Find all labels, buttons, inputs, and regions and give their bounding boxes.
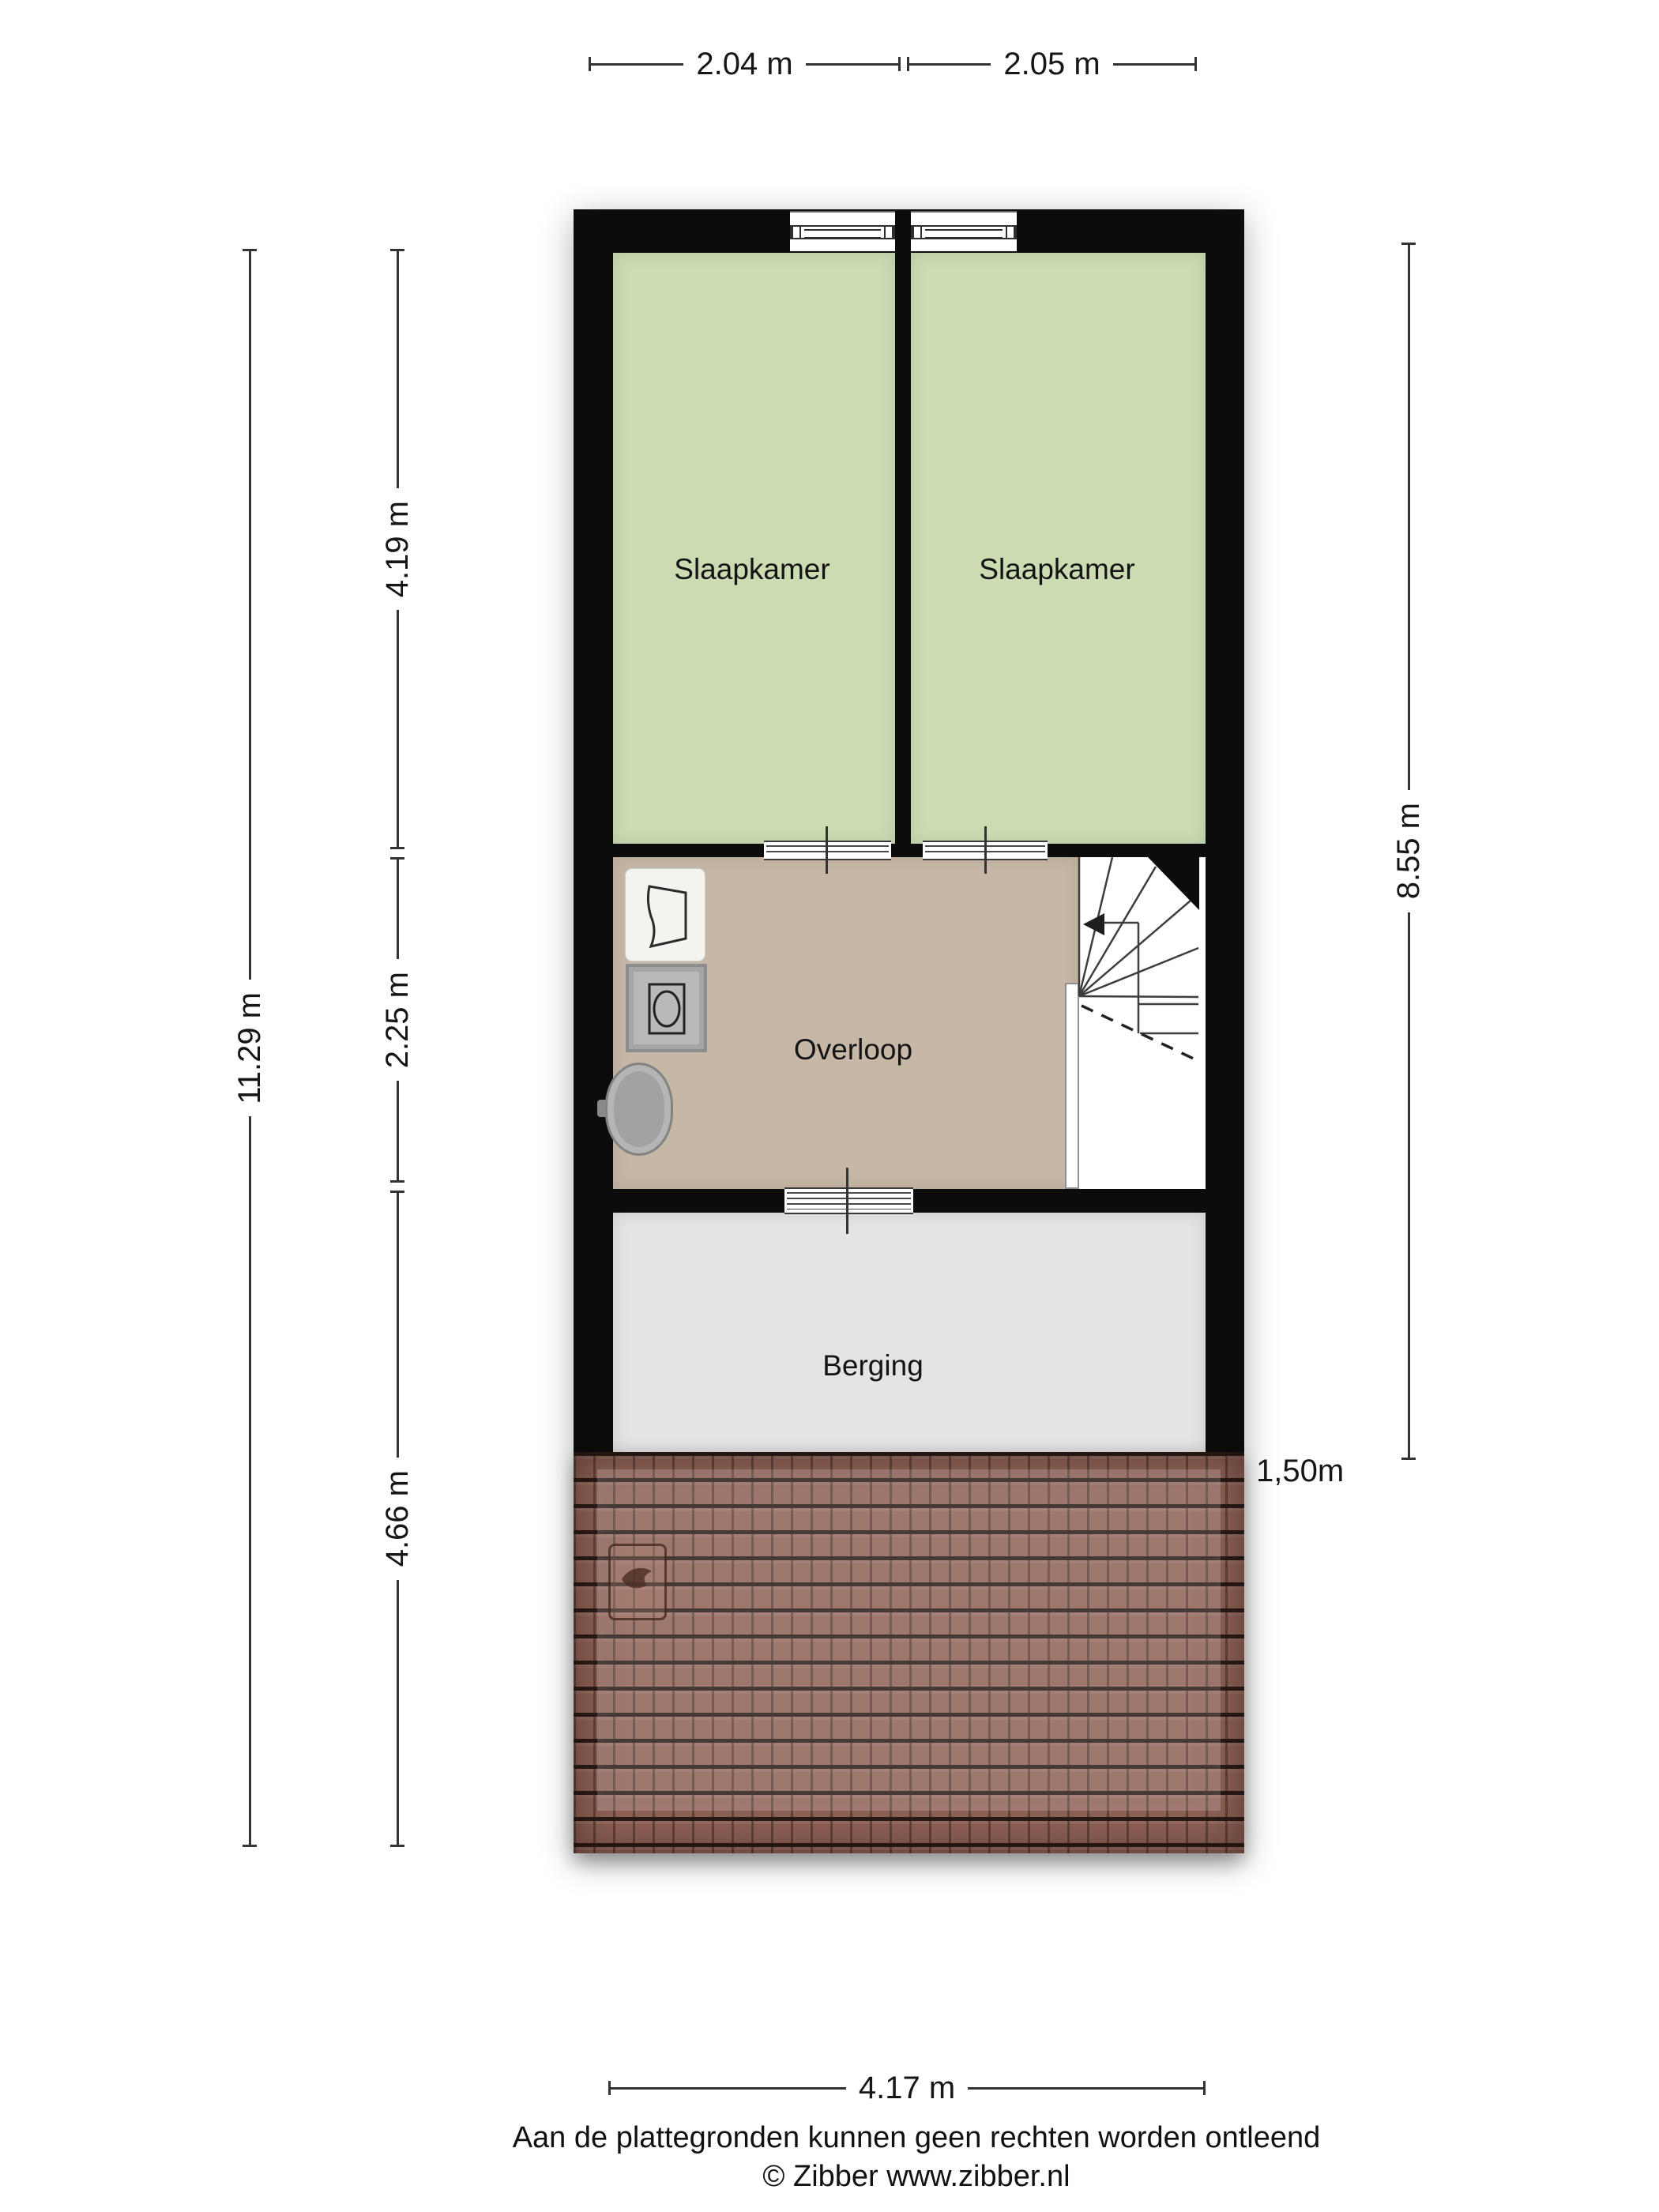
door-swing-mark bbox=[846, 1168, 848, 1234]
dimension-label: 4.17 m bbox=[846, 2071, 968, 2106]
window-glazing bbox=[804, 229, 881, 239]
door-swing-mark bbox=[984, 826, 987, 874]
roof-highlight bbox=[597, 1469, 1221, 1811]
room-label-storage: Berging bbox=[754, 1349, 991, 1382]
stairs-drawing bbox=[1059, 837, 1244, 1201]
dimension-tick bbox=[898, 57, 901, 71]
dimension-tick bbox=[1194, 57, 1197, 71]
dimension-line bbox=[397, 251, 399, 488]
footer-disclaimer: Aan de plattegronden kunnen geen rechten… bbox=[150, 2119, 1659, 2157]
dimension-label: 4.19 m bbox=[380, 488, 416, 610]
window-mullion bbox=[1006, 227, 1015, 238]
dimension-line bbox=[909, 63, 991, 66]
room-bedroom-left bbox=[613, 253, 895, 844]
dimension-tick bbox=[1203, 2081, 1206, 2095]
dimension-line bbox=[397, 610, 399, 847]
dimension-label: 2.25 m bbox=[380, 959, 416, 1081]
window-frame bbox=[790, 225, 895, 239]
room-label-landing: Overloop bbox=[735, 1033, 972, 1066]
room-label-bedroom-left: Slaapkamer bbox=[634, 553, 871, 586]
roof-window-icon bbox=[608, 1544, 667, 1620]
door-threshold bbox=[787, 1192, 911, 1209]
footer-copyright: © Zibber www.zibber.nl bbox=[150, 2157, 1659, 2196]
laundry-basket-icon bbox=[626, 869, 705, 961]
floor-plan: 2.04 m 2.05 m 11.29 m 4.19 m 2.25 m 4.66… bbox=[0, 0, 1659, 2212]
dimension-left-segment-2: 2.25 m bbox=[377, 857, 418, 1183]
wall-left bbox=[574, 209, 613, 1452]
sink-icon bbox=[605, 1063, 673, 1156]
dimension-label: 11.29 m bbox=[232, 980, 268, 1117]
room-bedroom-right bbox=[911, 253, 1206, 844]
dimension-left-segment-1: 4.19 m bbox=[377, 249, 418, 849]
wall-right bbox=[1206, 209, 1244, 1452]
window-mullion bbox=[912, 227, 922, 238]
dimension-bottom: 4.17 m bbox=[608, 2069, 1206, 2107]
wall-bedroom-divider bbox=[895, 209, 911, 857]
dimension-line bbox=[968, 2087, 1203, 2090]
dimension-line bbox=[397, 1193, 399, 1458]
window-frame bbox=[911, 225, 1017, 239]
dimension-tick bbox=[390, 1180, 404, 1183]
dimension-line bbox=[249, 1116, 251, 1845]
dimension-label: 2.05 m bbox=[991, 47, 1112, 82]
dimension-line bbox=[1113, 63, 1194, 66]
dimension-top-right: 2.05 m bbox=[907, 45, 1197, 83]
dimension-left-total: 11.29 m bbox=[229, 249, 270, 1847]
dimension-line bbox=[397, 1580, 399, 1845]
window-glazing bbox=[925, 229, 1003, 239]
dimension-line bbox=[611, 2087, 846, 2090]
window-mullion bbox=[792, 227, 801, 238]
room-storage bbox=[613, 1213, 1206, 1452]
dimension-tick bbox=[390, 1845, 404, 1847]
window-mullion bbox=[884, 227, 893, 238]
dimension-label: 4.66 m bbox=[380, 1458, 416, 1579]
dimension-label: 8.55 m bbox=[1391, 790, 1427, 912]
wall-corner-bevel bbox=[1148, 857, 1199, 910]
dimension-top-left: 2.04 m bbox=[589, 45, 901, 83]
dimension-line bbox=[397, 1081, 399, 1180]
dimension-tick bbox=[243, 1845, 257, 1847]
window-icon bbox=[911, 211, 1017, 251]
dimension-line bbox=[397, 860, 399, 959]
dimension-line bbox=[1408, 245, 1410, 790]
dimension-line bbox=[249, 251, 251, 980]
dimension-left-segment-3: 4.66 m bbox=[377, 1191, 418, 1847]
washing-machine-icon bbox=[626, 964, 707, 1052]
roof-tiles bbox=[574, 1452, 1244, 1853]
door-swing-mark bbox=[826, 826, 828, 874]
dimension-line bbox=[591, 63, 683, 66]
window-icon bbox=[790, 211, 895, 251]
roof-edge-dimension-label: 1,50m bbox=[1256, 1454, 1344, 1489]
dimension-tick bbox=[1401, 1458, 1416, 1460]
room-label-bedroom-right: Slaapkamer bbox=[939, 553, 1176, 586]
dimension-right: 8.55 m bbox=[1388, 243, 1429, 1460]
door-icon bbox=[784, 1187, 913, 1214]
dimension-line bbox=[1408, 912, 1410, 1458]
footer: Aan de plattegronden kunnen geen rechten… bbox=[150, 2119, 1659, 2196]
dimension-line bbox=[806, 63, 898, 66]
dimension-label: 2.04 m bbox=[683, 47, 805, 82]
dimension-tick bbox=[390, 847, 404, 849]
